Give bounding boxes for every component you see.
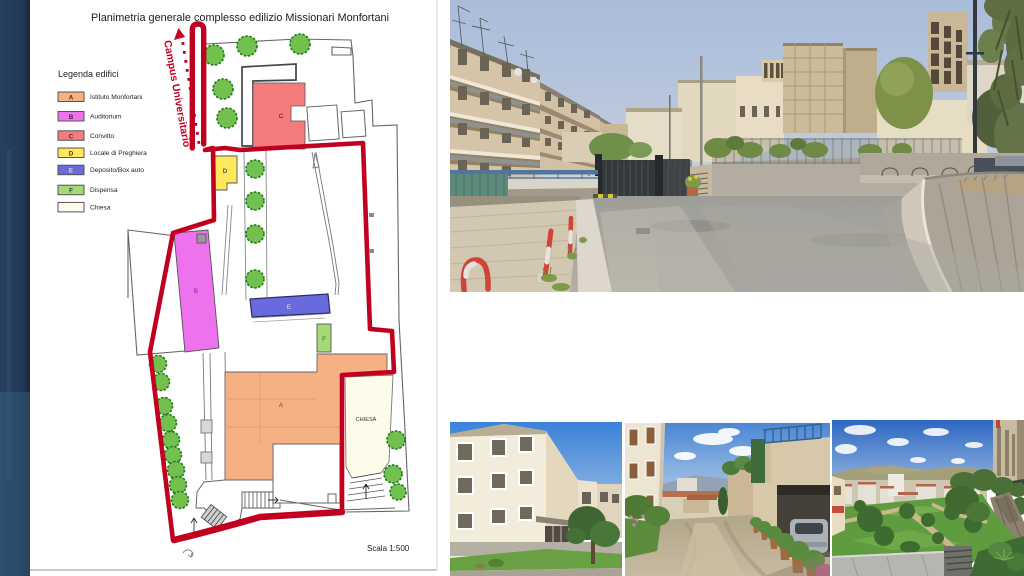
svg-text:Campus Universitario: Campus Universitario <box>161 39 193 148</box>
svg-text:Convitto: Convitto <box>90 133 115 140</box>
svg-text:B: B <box>69 114 74 121</box>
svg-text:Istituto Monfortani: Istituto Monfortani <box>90 94 143 101</box>
svg-text:Auditorium: Auditorium <box>90 114 122 121</box>
svg-text:Deposito/Box auto: Deposito/Box auto <box>90 167 144 174</box>
svg-text:Scala 1:500: Scala 1:500 <box>367 544 410 553</box>
svg-text:Locale di Preghiera: Locale di Preghiera <box>90 150 147 157</box>
svg-text:D: D <box>69 151 74 158</box>
svg-text:Legenda edifici: Legenda edifici <box>58 69 119 79</box>
svg-text:Dispensa: Dispensa <box>90 187 118 194</box>
svg-text:A: A <box>69 95 74 102</box>
svg-text:F: F <box>322 336 326 343</box>
svg-text:E: E <box>69 168 73 175</box>
svg-text:E: E <box>287 304 291 311</box>
svg-text:D: D <box>223 168 228 175</box>
svg-text:C: C <box>69 133 74 140</box>
svg-text:C: C <box>279 113 284 120</box>
svg-text:Chiesa: Chiesa <box>90 204 111 211</box>
svg-text:F: F <box>69 188 73 195</box>
svg-text:CHIESA: CHIESA <box>356 417 377 423</box>
svg-text:B: B <box>194 288 198 295</box>
svg-text:Planimetria generale complesso: Planimetria generale complesso edilizio … <box>91 12 389 24</box>
